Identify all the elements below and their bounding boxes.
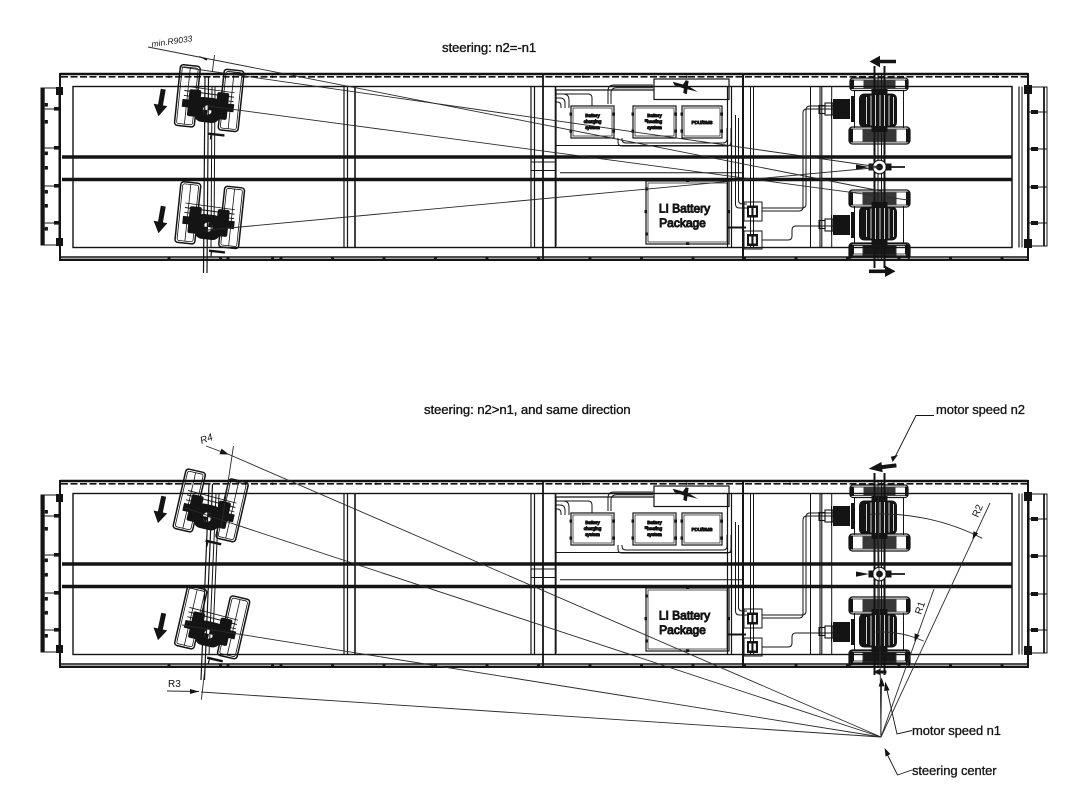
svg-text:steering: n2=-n1: steering: n2=-n1 xyxy=(442,40,536,55)
svg-text:motor speed n1: motor speed n1 xyxy=(912,723,1001,738)
svg-text:R3: R3 xyxy=(168,679,181,690)
svg-text:R4: R4 xyxy=(199,432,215,447)
svg-text:R1: R1 xyxy=(913,600,928,616)
svg-text:min.R9033: min.R9033 xyxy=(151,33,193,49)
svg-text:motor speed n2: motor speed n2 xyxy=(936,402,1025,417)
svg-text:steering: n2>n1, and same dir: steering: n2>n1, and same direction xyxy=(424,402,631,417)
svg-text:steering center: steering center xyxy=(912,763,997,778)
